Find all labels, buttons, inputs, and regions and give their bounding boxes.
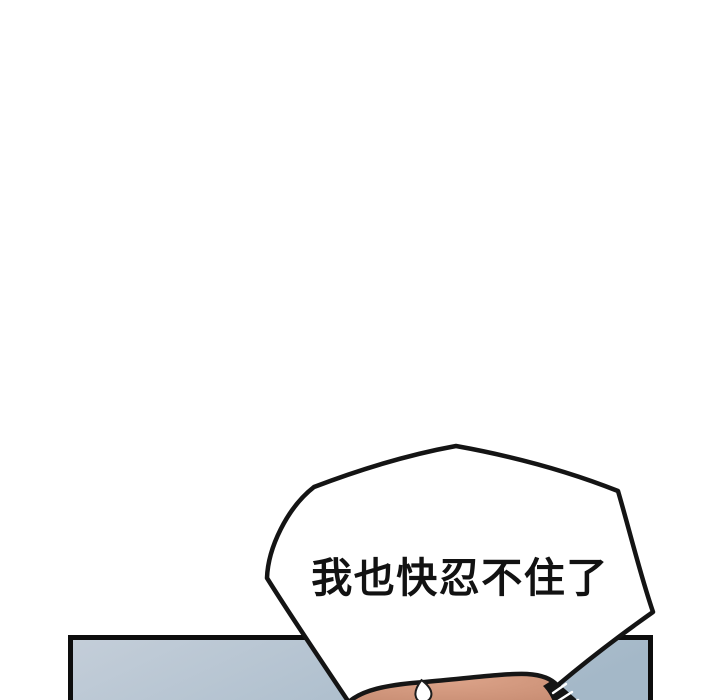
- comic-page: 我也快忍不住了: [0, 0, 720, 700]
- speech-bubble-text: 我也快忍不住了: [311, 554, 609, 602]
- comic-panel-artwork: 我也快忍不住了: [0, 0, 720, 700]
